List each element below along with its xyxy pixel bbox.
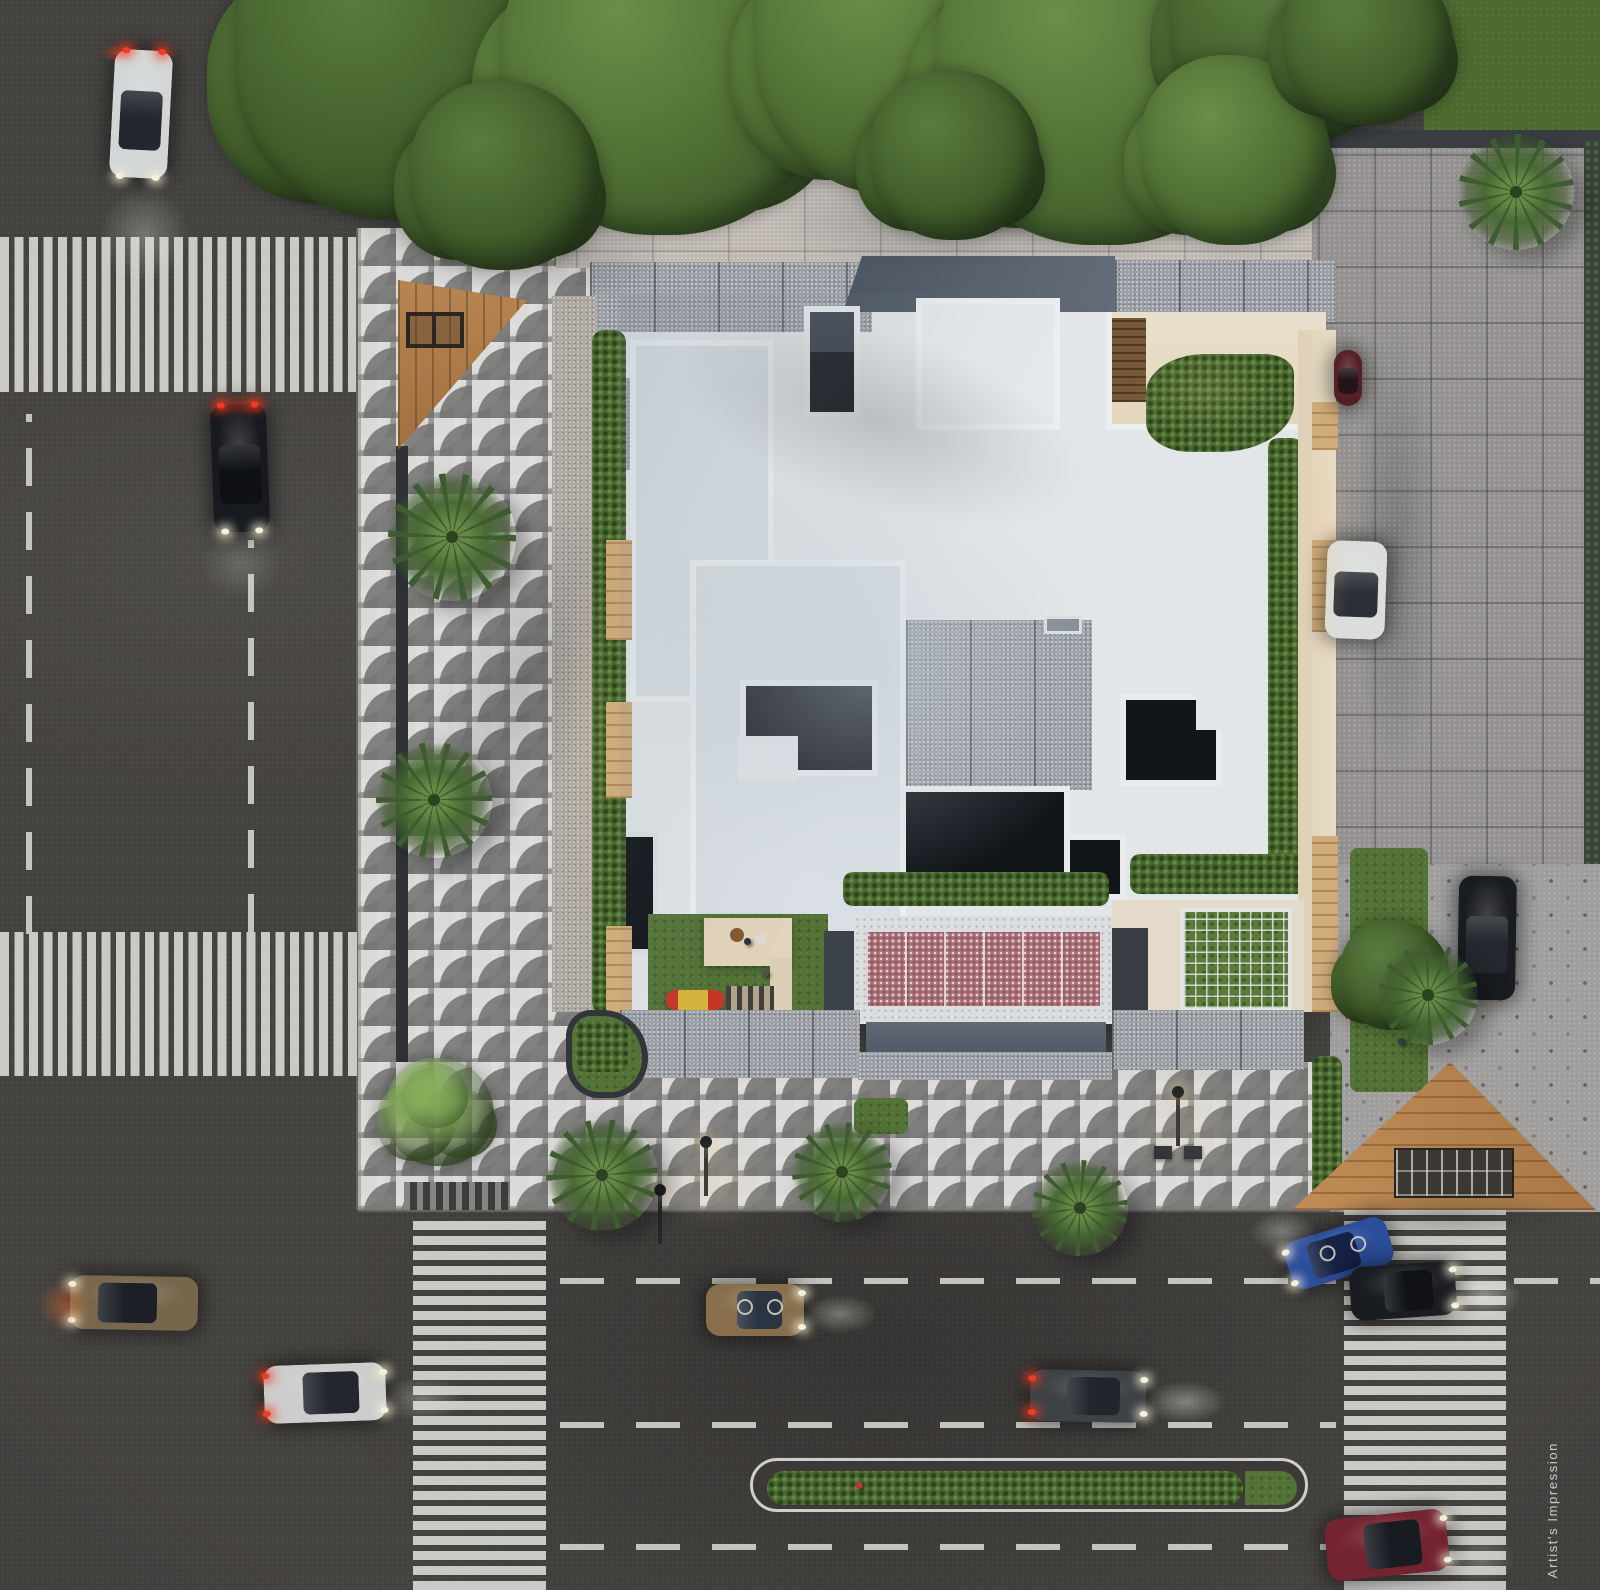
aerial-site-render: Artist's Impression [0, 0, 1600, 1590]
tree-canopy-9 [386, 1058, 494, 1166]
palm-crown-0 [446, 531, 458, 543]
palm-crown-2 [596, 1169, 608, 1181]
palm-crown-3 [836, 1166, 848, 1178]
watermark-text: Artist's Impression [1545, 1442, 1560, 1578]
vegetation-layer [0, 0, 1600, 1590]
tree-canopy-5 [410, 80, 600, 270]
palm-crown-4 [1074, 1202, 1086, 1214]
palm-crown-5 [1510, 186, 1522, 198]
palm-crown-6 [1422, 989, 1434, 1001]
palm-crown-1 [428, 794, 440, 806]
tree-canopy-6 [870, 70, 1040, 240]
